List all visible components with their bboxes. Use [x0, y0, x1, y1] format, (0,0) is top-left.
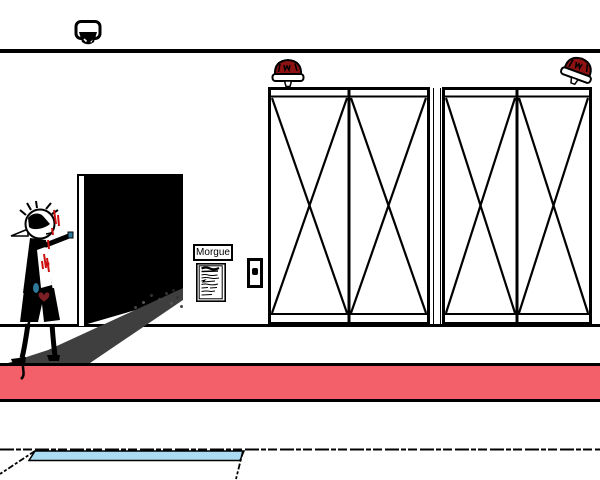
door-call-button[interactable] [247, 258, 263, 288]
game-scene: Morgue [0, 0, 600, 480]
doorway-jamb [77, 174, 84, 326]
posted-notice-icon[interactable] [196, 263, 226, 302]
red-floor-stripe [0, 363, 600, 402]
freezer-door-left[interactable] [268, 87, 430, 325]
character-sleeve [68, 232, 73, 238]
ceiling-line [0, 49, 600, 53]
morgue-sign[interactable]: Morgue [193, 244, 233, 261]
freezer-door-right[interactable] [442, 87, 592, 325]
security-camera-icon[interactable] [74, 20, 102, 47]
alarm-light-right-icon [556, 48, 599, 91]
door-gap-line [433, 88, 434, 324]
alarm-light-left-icon [271, 55, 305, 88]
ramp-speckles [150, 294, 153, 297]
floor-sketch-line-left [0, 451, 35, 474]
blue-puddle[interactable] [29, 451, 244, 461]
floor-sketch [0, 440, 600, 480]
door-call-button-dot [252, 268, 258, 275]
injured-character[interactable] [6, 198, 78, 383]
door-gap-line [440, 88, 441, 324]
morgue-sign-label: Morgue [196, 247, 230, 258]
